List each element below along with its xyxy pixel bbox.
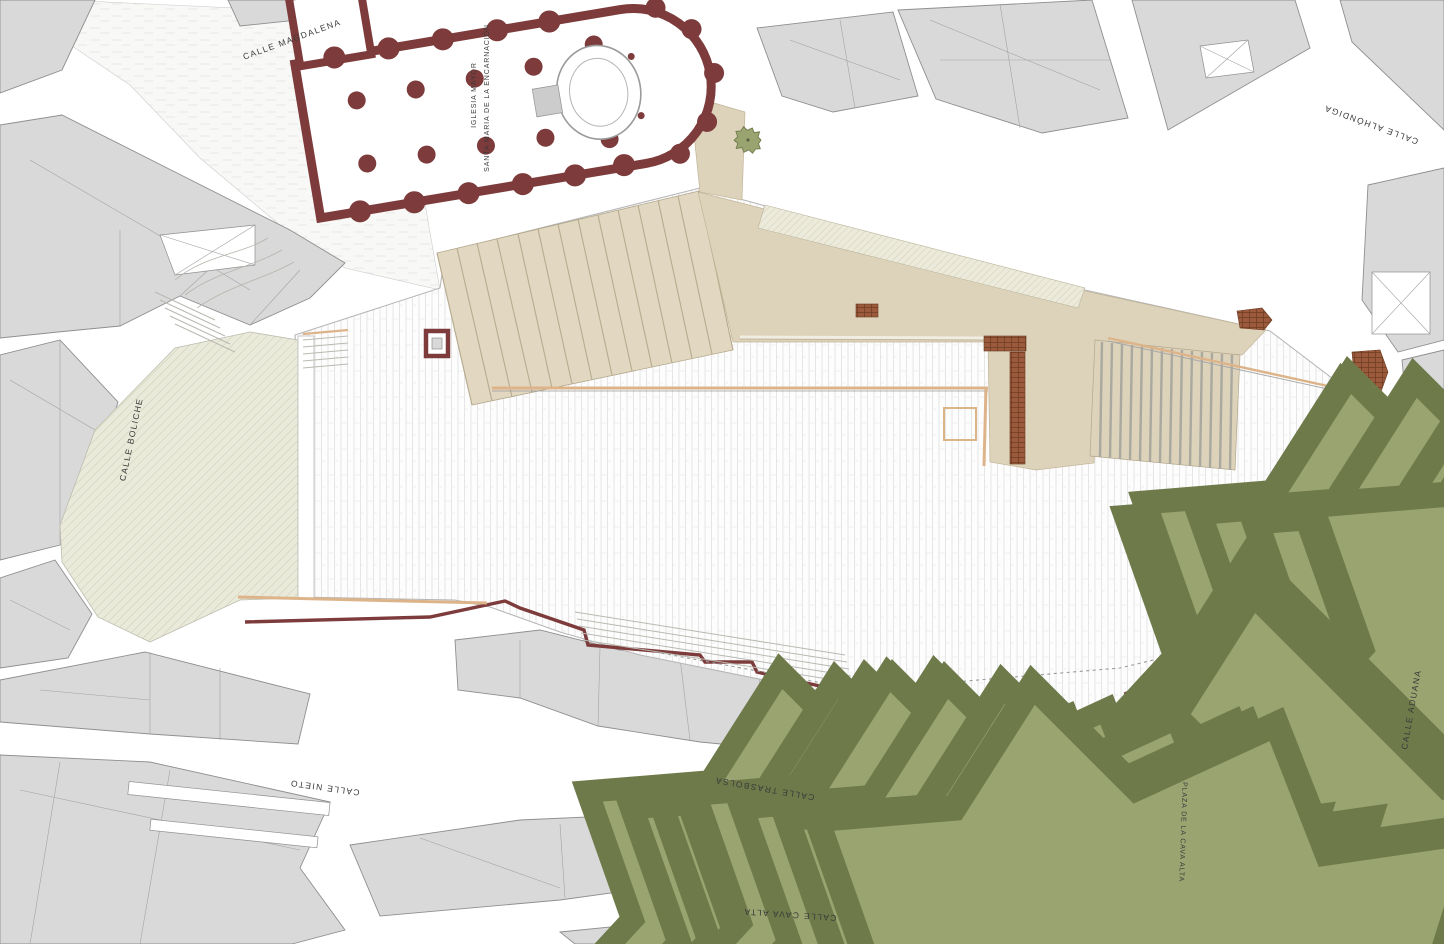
site-plan-svg: IGLESIA MAYOR SANTA MARIA DE LA ENCARNAC… (0, 0, 1444, 944)
church-label-line1: IGLESIA MAYOR (471, 62, 478, 128)
church-label-line2: SANTA MARIA DE LA ENCARNACIÓN (482, 24, 491, 172)
plaza-divider-path (298, 336, 314, 598)
east-grand-stair (1090, 340, 1240, 470)
site-plan-canvas: IGLESIA MAYOR SANTA MARIA DE LA ENCARNAC… (0, 0, 1444, 944)
esplanade-edge-tan (740, 337, 986, 338)
